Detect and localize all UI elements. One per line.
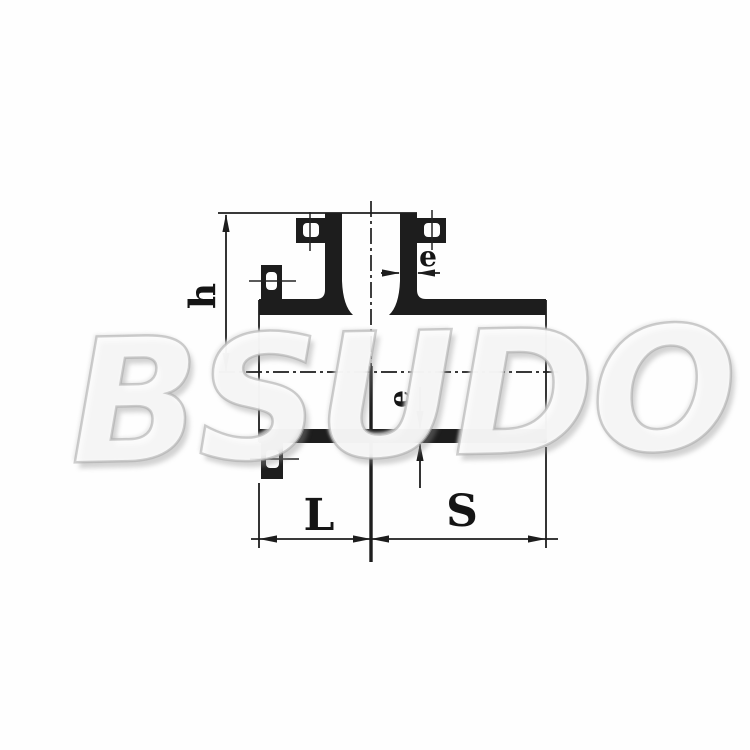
- centerline-horizontal: [219, 363, 558, 381]
- label-S: S: [446, 486, 478, 537]
- L-arrow-right: [353, 535, 371, 542]
- e-run-arrow-down: [416, 411, 423, 429]
- dimension-h: h: [183, 214, 230, 371]
- fitting-body: [218, 210, 546, 479]
- label-e-branch: e: [419, 240, 437, 273]
- tee-fitting-diagram: h e e L S: [0, 0, 750, 750]
- dimension-L-S: L S: [251, 447, 558, 548]
- drawing-canvas: h e e L S: [0, 0, 750, 750]
- L-arrow-left: [259, 535, 277, 542]
- e-run-arrow-up: [416, 443, 423, 461]
- left-wall-section: [259, 213, 353, 315]
- e-branch-arrow-right: [382, 269, 400, 276]
- bottom-wall-section: [259, 429, 546, 479]
- label-e-run: e: [383, 390, 416, 408]
- S-arrow-left: [371, 535, 389, 542]
- h-arrow-up: [222, 214, 229, 232]
- label-h: h: [183, 283, 225, 309]
- S-arrow-right: [528, 535, 546, 542]
- label-L: L: [304, 490, 335, 541]
- right-wall-section: [389, 213, 546, 315]
- h-arrow-down: [222, 353, 229, 371]
